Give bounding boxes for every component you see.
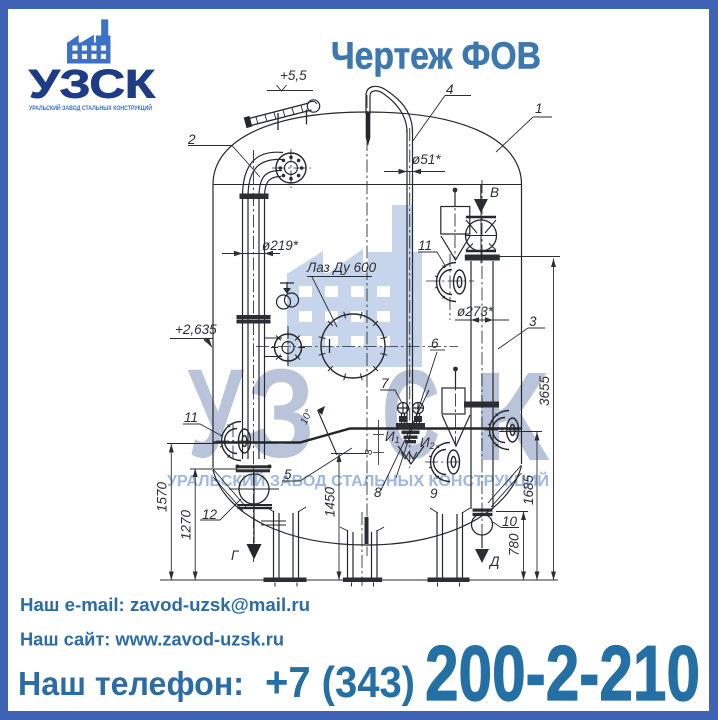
svg-text:Г: Г — [231, 548, 240, 563]
svg-text:+5,5: +5,5 — [280, 68, 307, 83]
svg-text:Наш e-mail: zavod-uzsk@mail.ru: Наш e-mail: zavod-uzsk@mail.ru — [20, 595, 310, 615]
svg-text:2: 2 — [187, 132, 196, 147]
svg-text:Чертеж ФОВ: Чертеж ФОВ — [331, 36, 541, 78]
svg-text:Наш сайт: www.zavod-uzsk.ru: Наш сайт: www.zavod-uzsk.ru — [20, 630, 284, 650]
svg-text:200-2-210: 200-2-210 — [425, 629, 700, 717]
svg-text:Д: Д — [488, 554, 500, 569]
svg-text:+2,635: +2,635 — [175, 322, 217, 337]
svg-text:1570: 1570 — [155, 481, 170, 512]
svg-text:ø273*: ø273* — [457, 304, 494, 319]
svg-text:Наш телефон:: Наш телефон: — [18, 665, 244, 702]
svg-text:3655: 3655 — [537, 375, 552, 406]
svg-text:УРАЛЬСКИЙ ЗАВОД СТАЛЬНЫХ КОНСТ: УРАЛЬСКИЙ ЗАВОД СТАЛЬНЫХ КОНСТРУКЦИЙ — [167, 471, 549, 490]
svg-text:К: К — [473, 346, 551, 487]
svg-text:11: 11 — [184, 410, 198, 425]
svg-text:4: 4 — [446, 82, 454, 97]
svg-text:5: 5 — [284, 467, 292, 482]
svg-text:ø219*: ø219* — [262, 238, 299, 253]
svg-text:10: 10 — [502, 514, 518, 529]
svg-text:УРАЛЬСКИЙ ЗАВОД СТАЛЬНЫХ КОНСТ: УРАЛЬСКИЙ ЗАВОД СТАЛЬНЫХ КОНСТРУКЦИЙ — [29, 103, 152, 112]
svg-text:7: 7 — [381, 376, 389, 391]
svg-text:9: 9 — [430, 486, 438, 501]
svg-text:1: 1 — [535, 101, 543, 116]
svg-text:1270: 1270 — [179, 509, 194, 540]
svg-text:ø51*: ø51* — [412, 152, 441, 167]
svg-text:В: В — [490, 185, 499, 200]
svg-text:1685: 1685 — [521, 474, 536, 505]
svg-text:780: 780 — [507, 533, 522, 556]
svg-text:Лаз Ду 600: Лаз Ду 600 — [306, 260, 377, 275]
svg-text:+7 (343): +7 (343) — [265, 658, 415, 707]
svg-text:8: 8 — [364, 449, 375, 455]
svg-text:8: 8 — [374, 485, 382, 500]
svg-text:УЗСК: УЗСК — [29, 62, 156, 106]
svg-text:11: 11 — [418, 238, 432, 253]
svg-text:1450: 1450 — [323, 486, 338, 517]
svg-text:6: 6 — [431, 336, 439, 351]
svg-text:3: 3 — [529, 314, 537, 329]
